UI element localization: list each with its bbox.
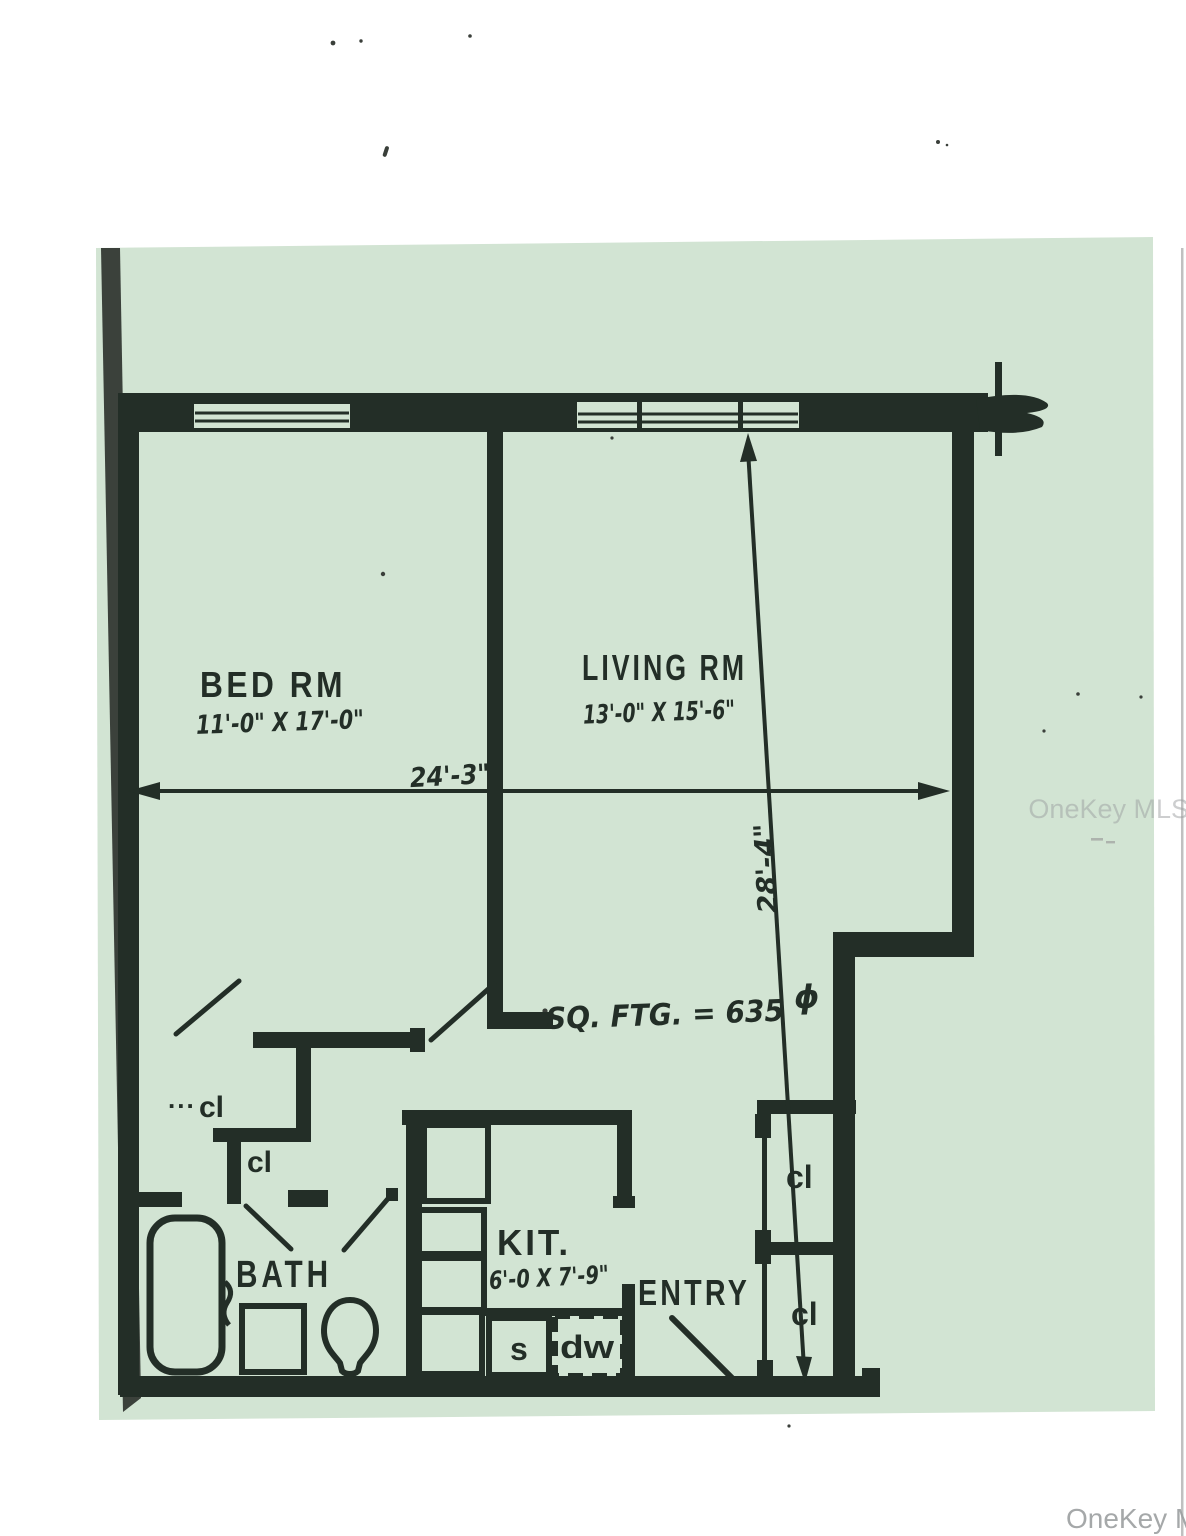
exterior-wall-bottom-endcap	[862, 1368, 880, 1397]
closet-label-3: cl	[786, 1159, 813, 1195]
bathroom-label: BATH	[236, 1254, 332, 1296]
living-room-label: LIVING RM	[582, 647, 747, 688]
width-dimension-label: 24'-3"	[409, 759, 491, 794]
floor-plan-drawing: BED RM 11'-0" X 17'-0" LIVING RM 13'-0" …	[0, 0, 1186, 1536]
exterior-wall-right-upper	[952, 424, 974, 938]
closet-wall-a	[296, 1046, 311, 1136]
dishwasher-label: dw	[560, 1329, 614, 1365]
closet-dashes: ...	[168, 1084, 196, 1114]
closet-label-2: cl	[247, 1146, 272, 1179]
divider-wall	[487, 428, 503, 1016]
closet-wall-b	[213, 1128, 311, 1142]
hall-door-jamb	[288, 1190, 328, 1207]
watermark-mid: OneKey MLS	[1028, 794, 1186, 824]
bath-top-wall	[130, 1192, 182, 1207]
scanned-floor-plan-page: BED RM 11'-0" X 17'-0" LIVING RM 13'-0" …	[0, 0, 1186, 1536]
entry-label: ENTRY	[638, 1272, 750, 1313]
closet-jamb-2	[755, 1230, 771, 1264]
divider-wall-cap	[487, 1012, 553, 1029]
kitchen-doorway-cap	[613, 1196, 635, 1208]
sink-label: s	[510, 1331, 528, 1367]
closet-label-1: cl	[199, 1091, 224, 1124]
kitchen-label: KIT.	[497, 1222, 571, 1263]
closet-bank-top-endcap	[410, 1028, 425, 1052]
bedroom-window-icon	[192, 402, 352, 430]
exterior-wall-left	[118, 393, 139, 1395]
kitchen-right-wall-lower	[622, 1284, 635, 1396]
bedroom-label: BED RM	[200, 664, 346, 705]
square-footage-mark: ϕ	[793, 977, 820, 1016]
closet-jamb-1	[755, 1114, 771, 1138]
living-room-window-icon	[575, 400, 801, 430]
watermark-bottom: OneKey MLS	[1066, 1503, 1186, 1534]
height-dimension-label: 28'-4"	[749, 823, 785, 914]
closet-wall-c	[227, 1140, 241, 1204]
closet-jamb-3	[757, 1360, 773, 1384]
closet-label-4: cl	[791, 1296, 818, 1332]
bedroom-size: 11'-0" X 17'-0"	[196, 705, 365, 741]
living-room-size: 13'-0" X 15'-6"	[583, 695, 736, 730]
scan-edge-line	[1181, 248, 1184, 1536]
closet-top-wall	[757, 1100, 856, 1114]
closet-bank-top-wall	[253, 1032, 420, 1048]
kitchen-right-wall-upper	[617, 1110, 632, 1207]
exterior-wall-right-lower	[833, 950, 855, 1392]
